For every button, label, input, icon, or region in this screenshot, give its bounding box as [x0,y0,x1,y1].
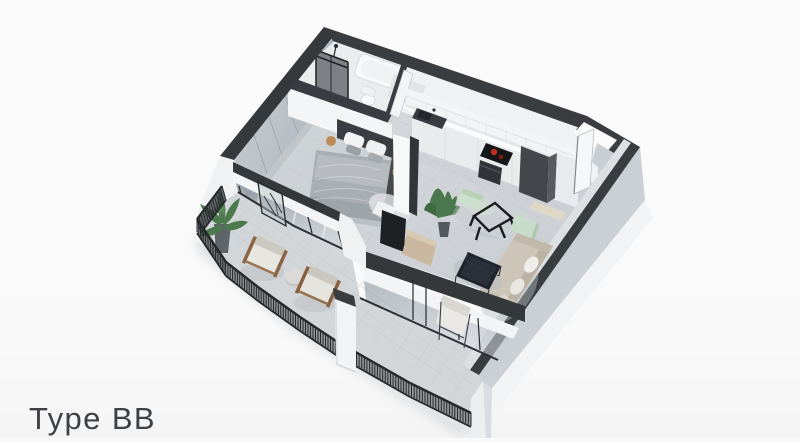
svg-text:Type BB: Type BB [29,401,156,436]
